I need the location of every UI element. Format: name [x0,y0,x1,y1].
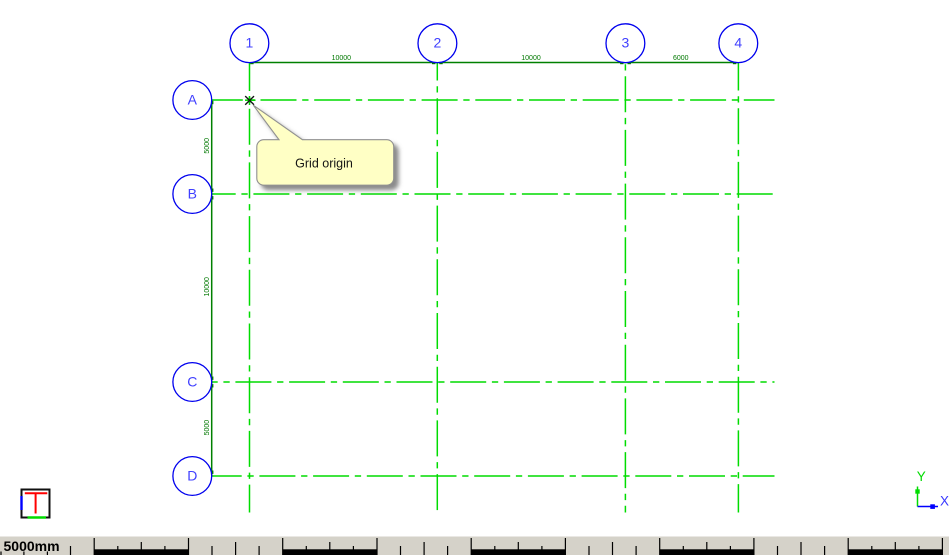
svg-text:B: B [188,185,197,201]
svg-text:10000: 10000 [332,55,352,62]
svg-text:3: 3 [622,35,630,51]
svg-text:Y: Y [917,469,926,484]
svg-text:Grid origin: Grid origin [295,156,353,170]
svg-text:4: 4 [734,35,742,51]
svg-text:6000: 6000 [673,55,689,62]
svg-text:1: 1 [246,35,254,51]
svg-text:C: C [187,373,197,389]
svg-text:5000: 5000 [204,138,211,154]
svg-text:10000: 10000 [204,277,211,297]
svg-text:D: D [187,467,197,483]
svg-text:A: A [188,91,198,107]
svg-text:2: 2 [434,35,442,51]
svg-text:10000: 10000 [521,55,541,62]
svg-text:X: X [940,494,949,509]
svg-text:5000mm: 5000mm [4,538,60,554]
svg-text:5000: 5000 [204,420,211,436]
